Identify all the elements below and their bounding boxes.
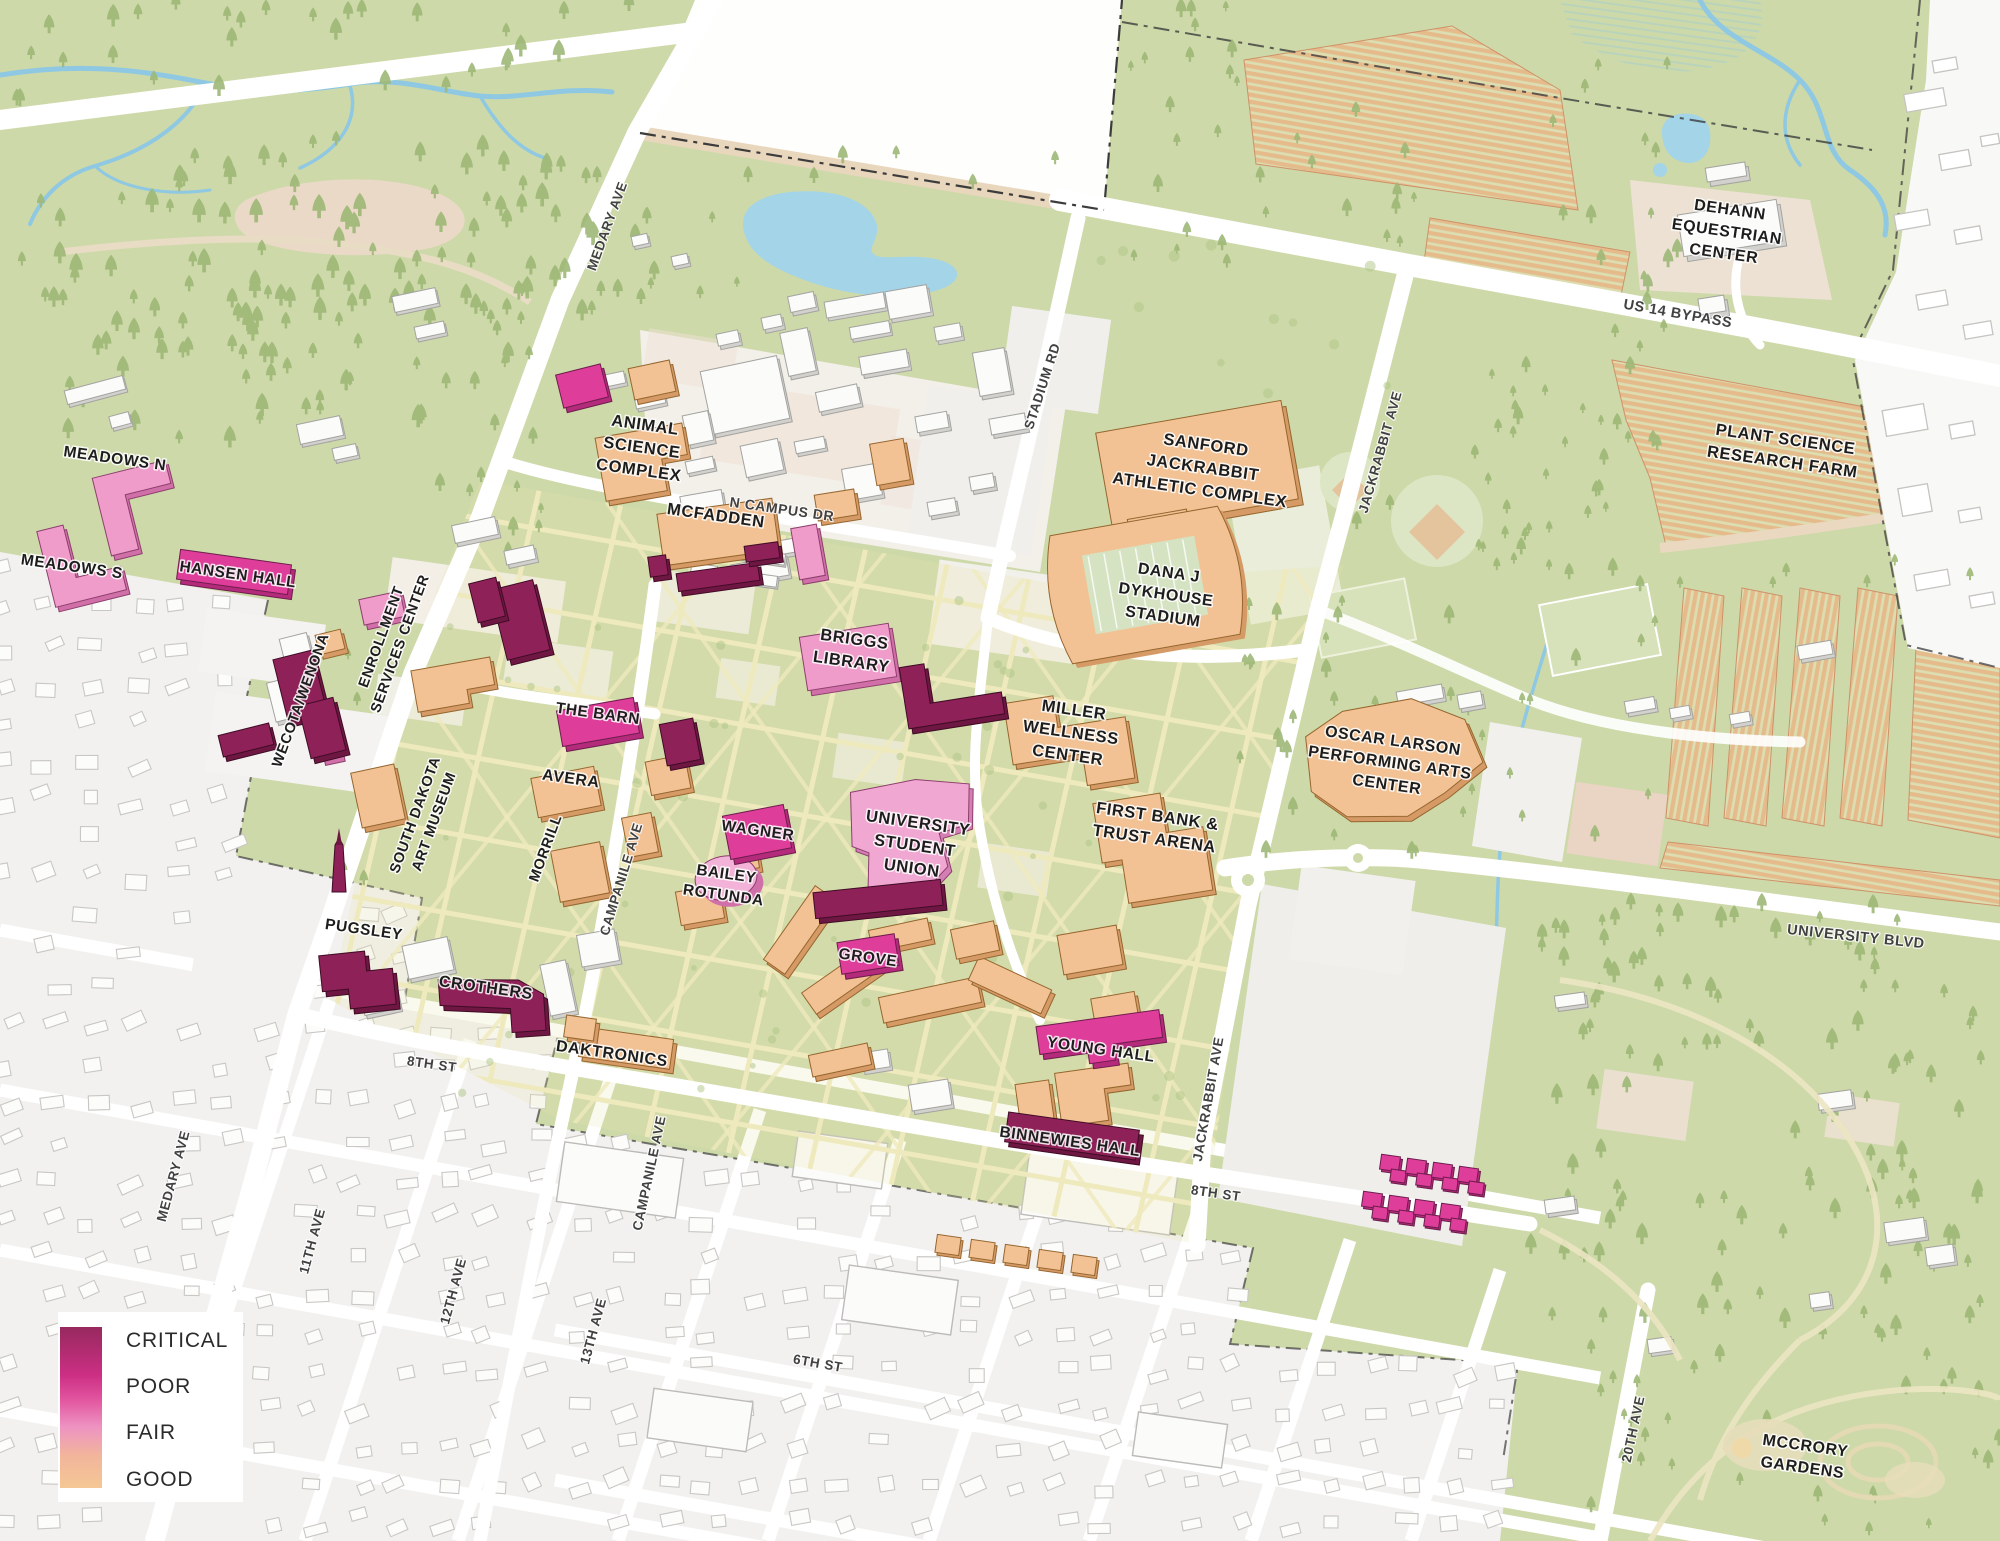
svg-text:CRITICAL: CRITICAL — [126, 1329, 228, 1352]
svg-text:POOR: POOR — [126, 1375, 191, 1398]
svg-text:FAIR: FAIR — [126, 1421, 176, 1444]
svg-text:GOOD: GOOD — [126, 1468, 193, 1491]
